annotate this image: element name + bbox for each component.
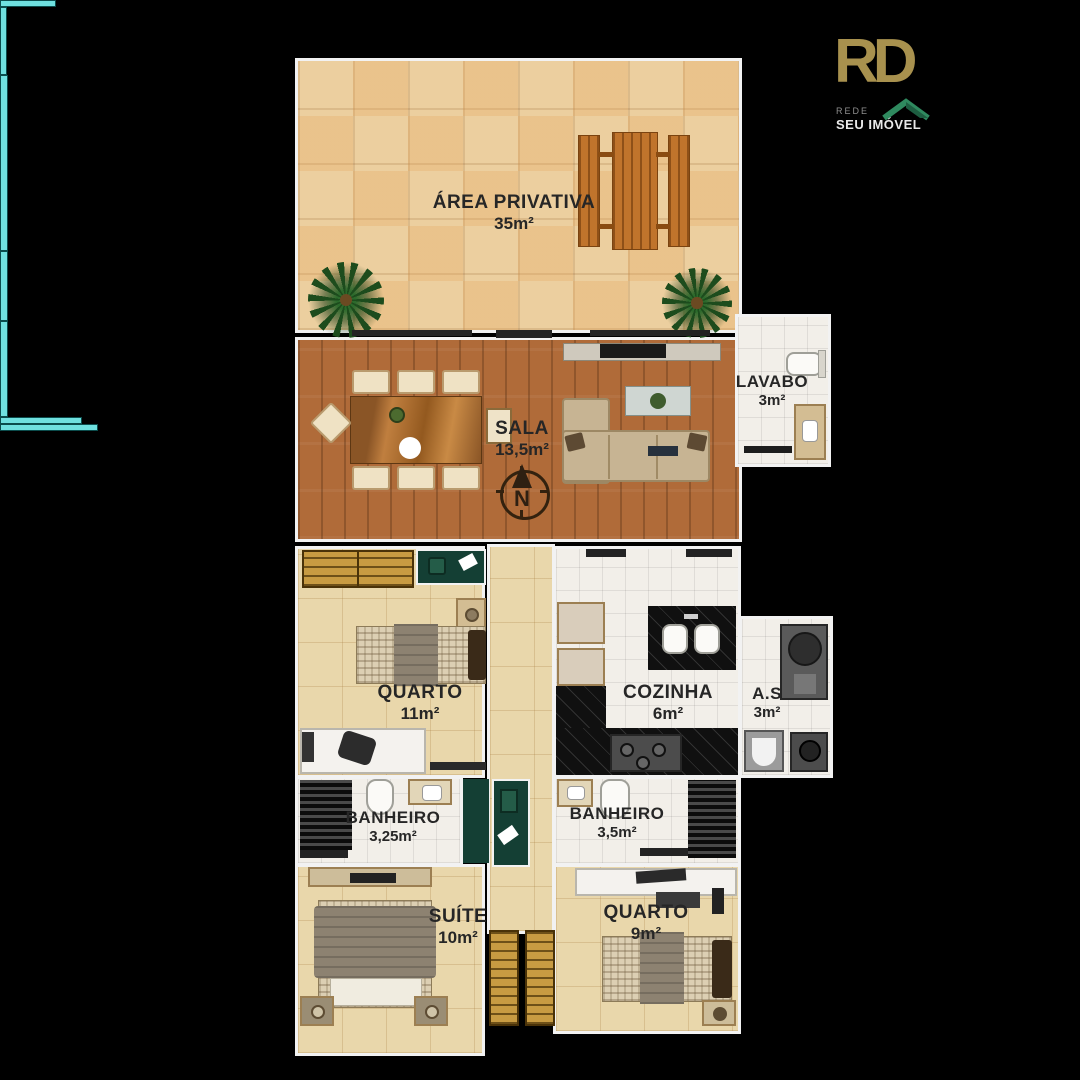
decor-niche: [416, 549, 486, 585]
door-swing: [586, 549, 626, 557]
laundry-sink: [744, 730, 784, 772]
door-swing: [744, 446, 792, 453]
toilet-tank: [818, 350, 826, 378]
window: [0, 424, 98, 431]
window: [0, 7, 7, 75]
tv: [600, 344, 666, 358]
roof-icon: [880, 98, 932, 127]
brand-logo: RD REDE SEU IMÓVEL: [828, 28, 958, 148]
window: [0, 321, 8, 417]
room-label-lavabo: LAVABO 3m²: [732, 372, 812, 409]
nightstand: [300, 996, 334, 1026]
dining-chair: [397, 466, 435, 490]
dining-chair: [352, 466, 390, 490]
north-compass-icon: N: [496, 466, 548, 518]
wall-shadow: [352, 330, 472, 336]
remote-tray: [648, 446, 678, 456]
doormat: [458, 553, 478, 571]
desk-lamp: [712, 888, 724, 914]
dining-chair: [352, 370, 390, 394]
dryer: [790, 732, 828, 772]
wardrobe: [302, 550, 414, 588]
dining-chair: [442, 370, 480, 394]
plant-pot-icon: [428, 557, 446, 575]
monitor: [302, 732, 314, 762]
doormat: [497, 825, 519, 845]
window: [0, 75, 8, 251]
brand-logo-monogram: RD: [834, 26, 912, 97]
nightstand: [702, 1000, 736, 1026]
palm-tree-icon: [662, 268, 732, 338]
door-swing: [496, 330, 552, 338]
sofa-pillow: [687, 432, 708, 451]
dresser: [308, 867, 432, 887]
room-label-quarto-9: QUARTO 9m²: [598, 902, 694, 943]
window: [0, 251, 8, 321]
decor-niche: [492, 779, 530, 867]
plate: [399, 437, 421, 459]
window: [0, 417, 82, 424]
kitchen-island: [648, 606, 736, 670]
wall-shadow: [590, 330, 710, 336]
room-label-suite: SUÍTE 10m²: [416, 906, 500, 947]
window: [0, 0, 56, 7]
floor-plan-poster: RD REDE SEU IMÓVEL: [0, 0, 1080, 1080]
room-label-sala: SALA 13,5m²: [482, 418, 562, 459]
hallway: [487, 544, 555, 934]
kitchen-cabinet: [557, 648, 605, 686]
vanity-sink: [408, 779, 452, 805]
palm-tree-icon: [308, 262, 384, 338]
bed-headboard: [468, 630, 486, 680]
dining-chair: [397, 370, 435, 394]
bed-sheet: [330, 978, 422, 1006]
table-plant: [650, 393, 666, 409]
closet-door: [525, 930, 555, 1026]
cabinet: [640, 848, 688, 856]
nightstand: [414, 996, 448, 1026]
room-label-as: A.S 3m²: [736, 684, 798, 721]
vanity-sink: [794, 404, 826, 460]
centerpiece: [389, 407, 405, 423]
sink-bowl: [662, 624, 688, 654]
room-label-cozinha: COZINHA 6m²: [618, 682, 718, 723]
sink-bowl: [694, 624, 720, 654]
vanity-sink: [557, 779, 593, 807]
tv: [350, 873, 396, 883]
dining-chair: [442, 466, 480, 490]
faucet: [684, 614, 698, 619]
door-swing: [430, 762, 486, 770]
room-label-banheiro-325: BANHEIRO 3,25m²: [338, 808, 448, 845]
decor-niche: [463, 779, 489, 863]
room-label-quarto-11: QUARTO 11m²: [372, 682, 468, 723]
kitchen-cabinet: [557, 602, 605, 644]
cabinet: [300, 850, 348, 858]
room-label-banheiro-35: BANHEIRO 3,5m²: [562, 804, 672, 841]
kitchen-counter: [556, 686, 606, 732]
shower-floor: [688, 780, 736, 858]
stove: [610, 734, 682, 772]
room-label-area-privativa: ÁREA PRIVATIVA 35m²: [430, 192, 598, 233]
door-swing: [686, 549, 732, 557]
bed-headboard: [712, 940, 732, 998]
compass-north-label: N: [496, 486, 548, 512]
coffee-table: [625, 386, 691, 416]
plant-pot-icon: [500, 789, 518, 813]
dining-table: [350, 396, 482, 464]
brand-logo-subtitle: REDE SEU IMÓVEL: [836, 106, 956, 132]
bed-blanket: [394, 624, 438, 686]
